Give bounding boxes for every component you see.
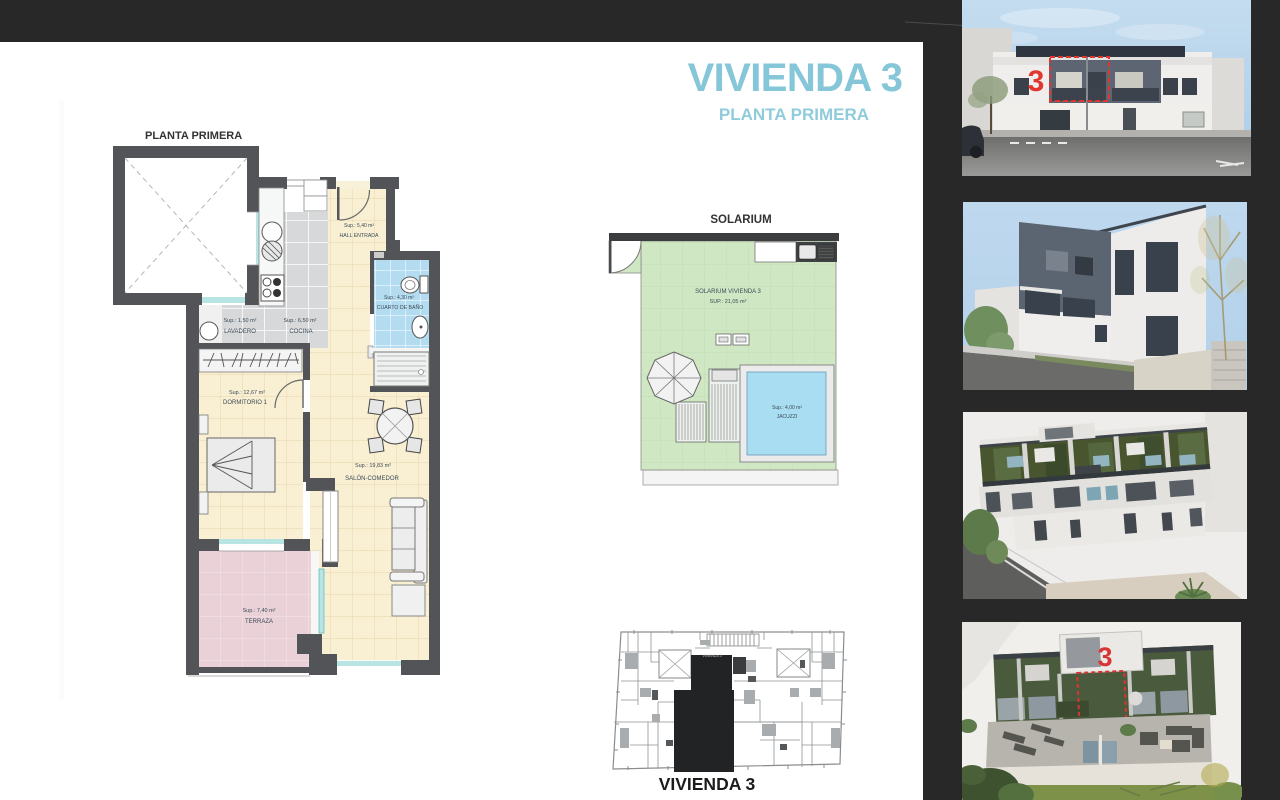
svg-text:SUP.: 21,05 m²: SUP.: 21,05 m² bbox=[710, 299, 747, 305]
svg-text:VIVIENDA 3: VIVIENDA 3 bbox=[702, 654, 721, 658]
svg-text:LAVADERO: LAVADERO bbox=[224, 329, 256, 335]
svg-text:SALÓN-COMEDOR: SALÓN-COMEDOR bbox=[345, 475, 399, 482]
svg-text:CUARTO DE BAÑO: CUARTO DE BAÑO bbox=[377, 304, 424, 311]
svg-text:DORMITORIO 1: DORMITORIO 1 bbox=[223, 400, 268, 406]
svg-text:Sup.: 19,83 m²: Sup.: 19,83 m² bbox=[355, 463, 391, 469]
svg-text:Sup.: 6,50 m²: Sup.: 6,50 m² bbox=[283, 318, 316, 324]
svg-text:Sup.: 1,50 m²: Sup.: 1,50 m² bbox=[223, 318, 256, 324]
svg-text:SOLARIUM VIVIENDA 3: SOLARIUM VIVIENDA 3 bbox=[695, 289, 761, 295]
svg-text:3: 3 bbox=[1028, 65, 1045, 98]
svg-text:Sup.: 12,67 m²: Sup.: 12,67 m² bbox=[229, 390, 265, 396]
svg-text:JACUZZI: JACUZZI bbox=[777, 414, 798, 420]
svg-text:VIVIENDA 3: VIVIENDA 3 bbox=[659, 774, 756, 794]
svg-text:Sup.: 4,00 m²: Sup.: 4,00 m² bbox=[772, 405, 802, 411]
svg-text:SOLARIUM: SOLARIUM bbox=[710, 214, 771, 226]
svg-text:VIVIENDA 3: VIVIENDA 3 bbox=[688, 56, 903, 100]
svg-text:HALL ENTRADA: HALL ENTRADA bbox=[339, 233, 379, 239]
svg-text:Sup.: 7,40 m²: Sup.: 7,40 m² bbox=[242, 608, 275, 614]
svg-text:PLANTA PRIMERA: PLANTA PRIMERA bbox=[145, 130, 242, 142]
svg-text:Sup.: 5,40 m²: Sup.: 5,40 m² bbox=[344, 223, 374, 229]
svg-text:COCINA: COCINA bbox=[289, 329, 312, 335]
svg-text:Sup.: 4,30 m²: Sup.: 4,30 m² bbox=[384, 295, 414, 301]
svg-text:PLANTA PRIMERA: PLANTA PRIMERA bbox=[719, 105, 869, 124]
svg-text:3: 3 bbox=[1097, 642, 1112, 672]
svg-text:TERRAZA: TERRAZA bbox=[245, 619, 273, 625]
